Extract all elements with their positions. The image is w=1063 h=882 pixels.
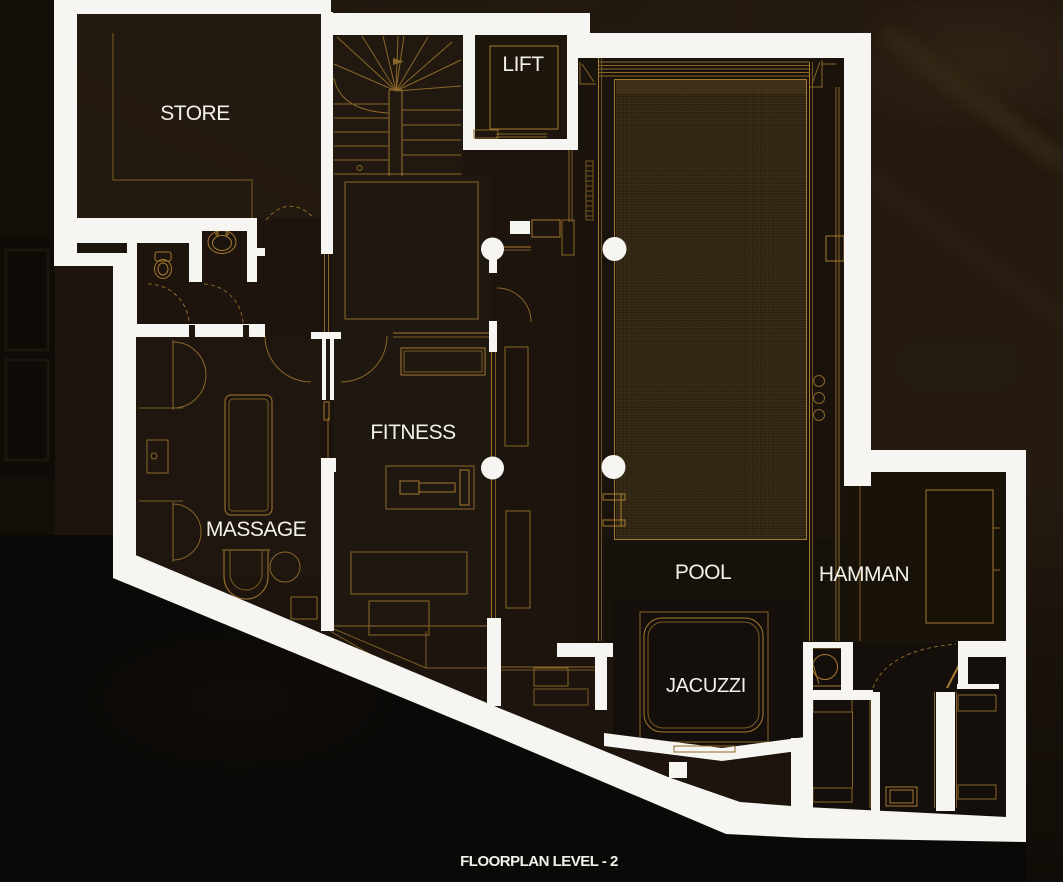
svg-text:POOL: POOL: [675, 561, 731, 584]
svg-text:LIFT: LIFT: [502, 53, 544, 76]
svg-text:MASSAGE: MASSAGE: [206, 518, 307, 541]
svg-text:FLOORPLAN LEVEL - 2: FLOORPLAN LEVEL - 2: [460, 853, 618, 870]
svg-text:FITNESS: FITNESS: [370, 421, 456, 444]
svg-text:JACUZZI: JACUZZI: [666, 675, 746, 697]
svg-text:STORE: STORE: [160, 102, 230, 125]
svg-text:HAMMAN: HAMMAN: [819, 563, 909, 586]
